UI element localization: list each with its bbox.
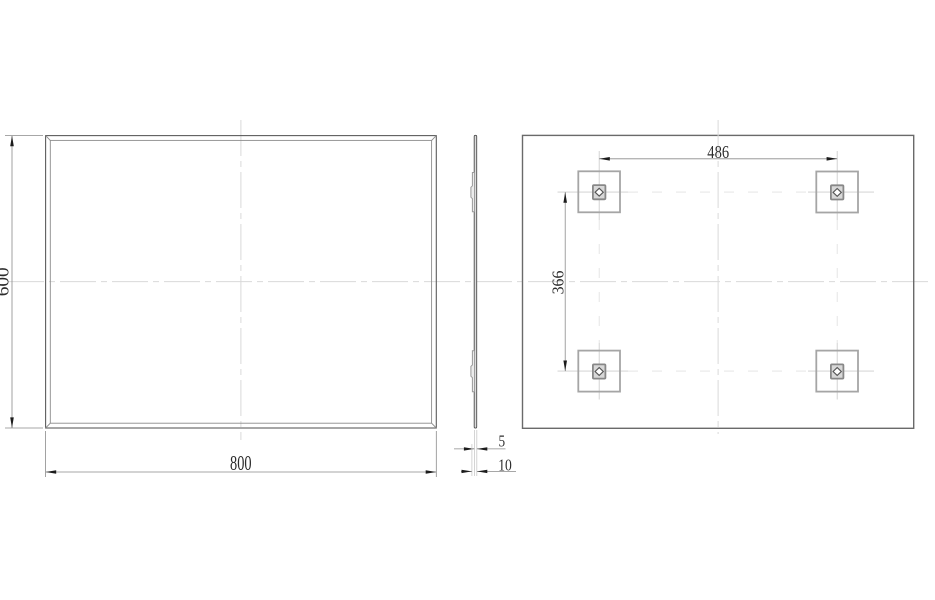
svg-text:366: 366 bbox=[548, 270, 567, 294]
svg-text:486: 486 bbox=[707, 142, 729, 162]
svg-text:5: 5 bbox=[499, 432, 506, 451]
svg-text:800: 800 bbox=[230, 451, 252, 475]
svg-text:10: 10 bbox=[498, 456, 512, 475]
svg-text:600: 600 bbox=[0, 267, 13, 296]
